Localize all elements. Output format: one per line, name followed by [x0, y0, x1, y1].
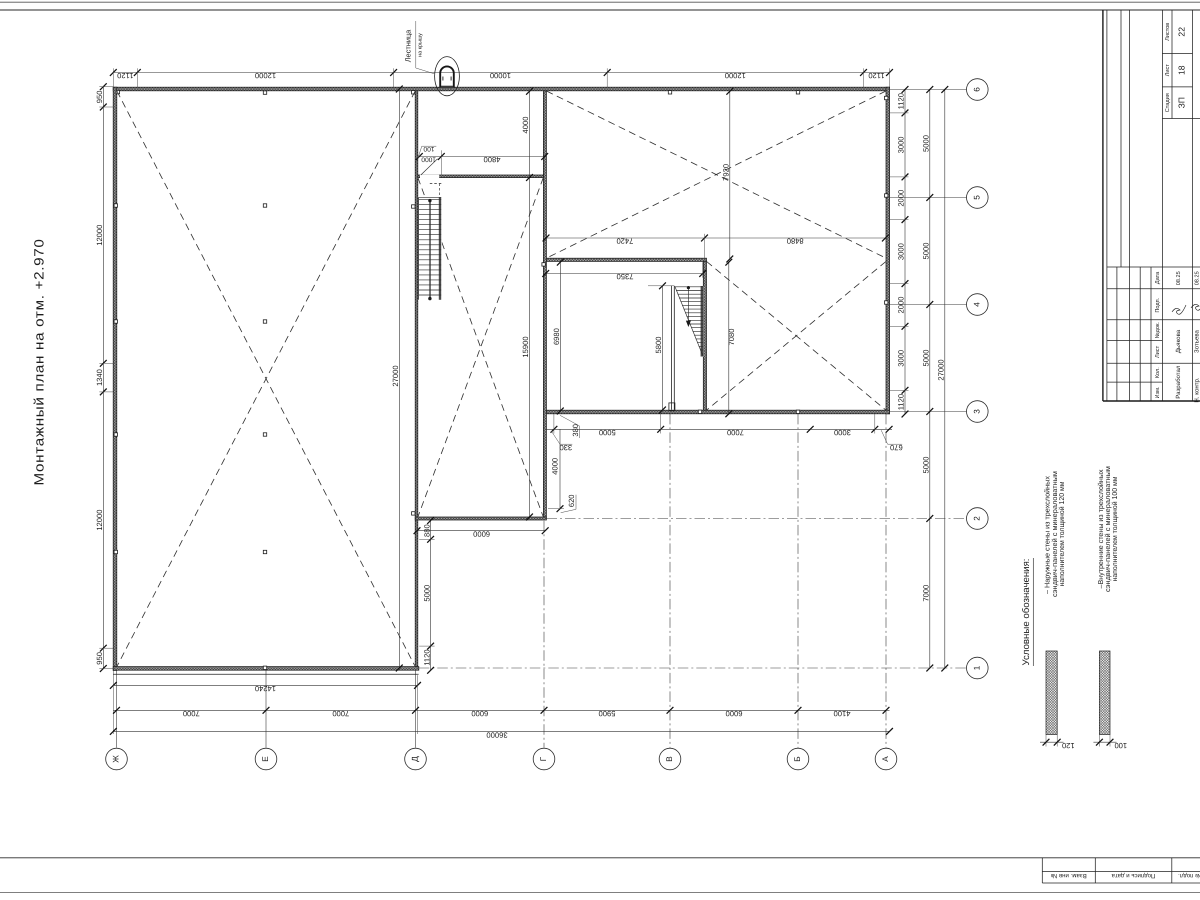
svg-text:ЗП: ЗП [1176, 97, 1186, 108]
svg-text:4: 4 [973, 302, 982, 307]
svg-text:7000: 7000 [332, 709, 349, 718]
svg-text:Дата: Дата [1155, 271, 1161, 284]
svg-text:В: В [665, 756, 674, 762]
svg-text:950: 950 [95, 91, 104, 104]
svg-text:Дьякова: Дьякова [1175, 329, 1182, 353]
svg-text:4100: 4100 [834, 709, 851, 718]
svg-text:3000: 3000 [834, 428, 851, 437]
svg-text:7420: 7420 [616, 237, 633, 246]
svg-text:Разработал: Разработал [1175, 365, 1182, 399]
svg-text:Лист: Лист [1165, 64, 1171, 77]
svg-text:620: 620 [567, 494, 576, 507]
svg-text:08.25: 08.25 [1195, 271, 1200, 285]
svg-text:3000: 3000 [897, 243, 906, 260]
svg-text:6000: 6000 [471, 709, 488, 718]
svg-text:880: 880 [422, 524, 431, 537]
svg-text:Д: Д [411, 756, 420, 762]
svg-text:3000: 3000 [897, 350, 906, 367]
svg-text:1000: 1000 [421, 155, 436, 162]
svg-text:1120: 1120 [897, 394, 906, 410]
svg-text:100: 100 [1114, 741, 1127, 750]
svg-text:Зотьева: Зотьева [1194, 329, 1200, 352]
svg-text:2000: 2000 [897, 297, 906, 314]
svg-text:6980: 6980 [552, 328, 561, 345]
svg-text:1: 1 [973, 665, 982, 670]
svg-text:3: 3 [973, 409, 982, 414]
svg-text:Инв. № подл.: Инв. № подл. [1178, 872, 1200, 879]
svg-text:15900: 15900 [521, 336, 530, 357]
svg-text:Б: Б [793, 756, 802, 761]
svg-text:Монтажный план на отм. +2.970: Монтажный план на отм. +2.970 [31, 238, 46, 485]
svg-text:36000: 36000 [486, 730, 507, 739]
svg-text:6: 6 [973, 87, 982, 92]
svg-text:А: А [881, 756, 890, 762]
svg-text:380: 380 [571, 424, 580, 437]
svg-text:12000: 12000 [725, 71, 746, 80]
svg-text:18: 18 [1176, 65, 1186, 75]
svg-text:5000: 5000 [922, 135, 931, 152]
svg-text:5900: 5900 [599, 709, 616, 718]
svg-text:5000: 5000 [922, 350, 931, 367]
svg-text:Г: Г [539, 756, 548, 761]
svg-text:наполнителем толщиной 100 мм: наполнителем толщиной 100 мм [1111, 476, 1119, 581]
svg-text:6000: 6000 [473, 529, 490, 538]
svg-text:8480: 8480 [787, 237, 804, 246]
svg-text:5000: 5000 [922, 243, 931, 260]
svg-text:6000: 6000 [726, 709, 743, 718]
svg-text:7350: 7350 [617, 272, 634, 281]
svg-text:Е: Е [261, 756, 270, 762]
svg-text:5: 5 [973, 195, 982, 200]
svg-text:4000: 4000 [551, 458, 560, 475]
svg-text:Лист: Лист [1155, 345, 1161, 358]
svg-text:Ж: Ж [112, 755, 121, 763]
svg-text:Условные обозначения:: Условные обозначения: [1021, 559, 1032, 666]
svg-text:Н. контр.: Н. контр. [1194, 377, 1200, 402]
svg-text:1340: 1340 [95, 369, 104, 386]
svg-text:12000: 12000 [95, 510, 104, 531]
svg-text:10000: 10000 [490, 71, 511, 80]
svg-text:14240: 14240 [255, 684, 276, 693]
svg-text:120: 120 [1062, 741, 1075, 750]
svg-text:7000: 7000 [922, 585, 931, 602]
svg-text:7920: 7920 [722, 164, 731, 181]
svg-text:5000: 5000 [599, 428, 616, 437]
svg-text:2: 2 [973, 516, 982, 521]
svg-text:наполнителем толщиной 120 мм: наполнителем толщиной 120 мм [1058, 481, 1066, 586]
svg-text:1120: 1120 [117, 71, 133, 80]
svg-text:Стадия: Стадия [1165, 93, 1171, 112]
svg-text:7080: 7080 [727, 329, 736, 346]
svg-text:950: 950 [95, 652, 104, 665]
svg-text:7000: 7000 [183, 709, 200, 718]
svg-text:7000: 7000 [727, 428, 744, 437]
svg-text:Листов: Листов [1165, 23, 1171, 41]
svg-text:Кол.: Кол. [1155, 367, 1161, 379]
svg-text:5000: 5000 [922, 457, 931, 474]
svg-text:22: 22 [1176, 27, 1186, 37]
svg-text:08.25: 08.25 [1176, 271, 1182, 285]
svg-text:Подп.: Подп. [1155, 297, 1161, 312]
svg-text:2000: 2000 [897, 190, 906, 207]
svg-text:4800: 4800 [484, 155, 501, 164]
svg-text:№док.: №док. [1155, 322, 1161, 339]
svg-text:1120: 1120 [422, 649, 431, 665]
svg-text:12000: 12000 [95, 225, 104, 246]
svg-text:Лестница: Лестница [404, 29, 413, 62]
svg-text:на крышу: на крышу [418, 33, 424, 57]
svg-text:12000: 12000 [255, 71, 276, 80]
svg-text:Взам. инв №: Взам. инв № [1050, 872, 1087, 879]
svg-text:4000: 4000 [521, 117, 530, 134]
svg-text:1120: 1120 [868, 71, 884, 80]
svg-text:Подпись и дата: Подпись и дата [1111, 872, 1155, 879]
svg-text:27000: 27000 [937, 359, 946, 380]
svg-text:Изм.: Изм. [1155, 386, 1161, 398]
svg-text:3000: 3000 [897, 136, 906, 153]
svg-text:1120: 1120 [897, 93, 906, 109]
svg-text:27000: 27000 [391, 365, 400, 386]
svg-text:5800: 5800 [654, 337, 663, 354]
svg-text:5000: 5000 [422, 585, 431, 602]
